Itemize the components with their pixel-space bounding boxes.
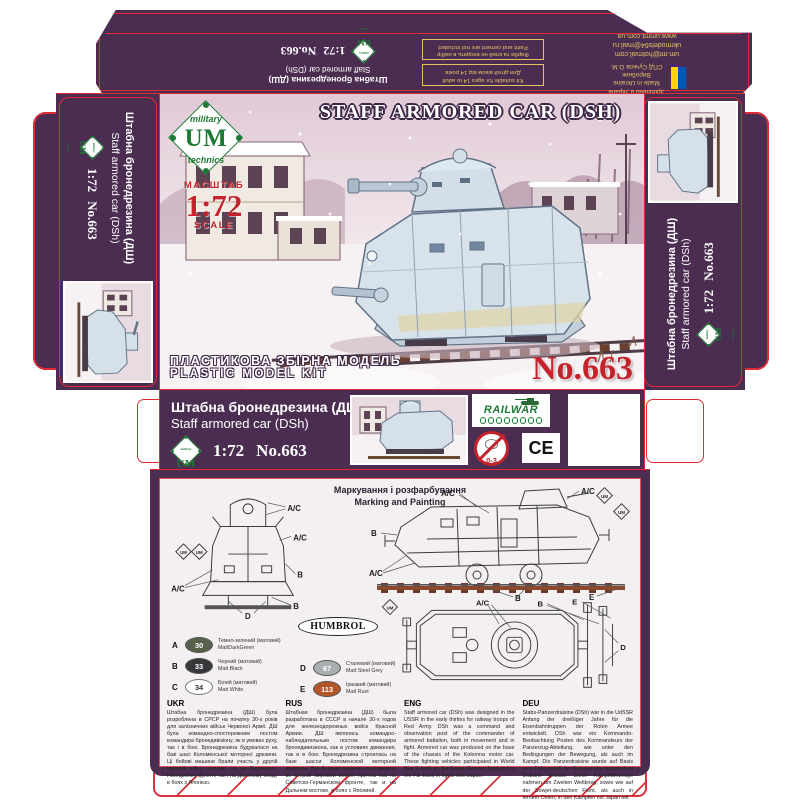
strip-title: Штабна бронедрезина (ДШ) Staff armored c… — [171, 398, 365, 433]
railwar-logo: RAILWAR — [472, 394, 550, 427]
svg-text:E: E — [572, 598, 577, 607]
scale-label: 1:72 — [213, 441, 244, 461]
paint-row: D 67 Сталевий (матовий)Matt Steel Grey — [300, 660, 395, 676]
right-ear-flap — [744, 112, 769, 370]
box-template-sheet: Зроблено в Україні Made in Ukraine Вироб… — [0, 0, 800, 800]
kit-title-en: Staff armored car (DSh) — [680, 201, 692, 387]
svg-text:A/C: A/C — [441, 489, 455, 498]
paint-row: E 113 Іржавий (матовий)Matt Rust — [300, 681, 395, 697]
svg-text:B: B — [538, 600, 544, 609]
um-diamond-marker: UM UM — [597, 488, 630, 520]
paint-row: A 30 Темно-зелений (матовий)MattDarkGree… — [172, 637, 281, 653]
um-logo: militaryUMtechnics — [170, 102, 242, 174]
svg-text:UM: UM — [618, 510, 625, 515]
ukraine-flag-icon — [671, 67, 686, 89]
paint-warning-box: Фарби та клей не входять в набір Paint a… — [422, 39, 544, 61]
top-flap-panel: Зроблено в Україні Made in Ukraine Вироб… — [96, 10, 752, 94]
side-vignette-image — [648, 101, 738, 203]
paint-swatch: 30 — [185, 637, 213, 653]
history-column-deu: DEU Stabs-Panzerdraisine (DSh) war in di… — [523, 699, 634, 761]
contact-emails: um.mt@hotmail.com ukrmodels64@mail.ru ww… — [552, 30, 742, 58]
svg-text:A/C: A/C — [476, 599, 490, 608]
flap-title-block: Штабна бронедрезина (ДШ) Staff armored c… — [242, 40, 414, 86]
strip-vignette-image — [350, 395, 468, 465]
um-logo: militaryUMtechnics — [697, 323, 720, 346]
humbrol-logo: HUMBROL — [298, 617, 378, 636]
bottom-panel-frame: Маркування і розфарбування Marking and P… — [150, 470, 650, 776]
top-flap-content: Зроблено в Україні Made in Ukraine Вироб… — [96, 34, 752, 91]
box-title: STAFF ARMORED CAR (DSH) — [300, 101, 641, 124]
kit-title-uk: Штабна бронедрезина (ДШ) — [123, 95, 135, 281]
left-ear-flap — [33, 112, 58, 370]
paint-swatch: 34 — [185, 679, 213, 695]
side-view-diagram: UM UM A/C B A/C A/C B E — [364, 483, 638, 601]
scale-label: 1:72 — [323, 44, 345, 59]
age-warning-box: Kit suitable for ages 14 to adult Для ді… — [422, 65, 544, 87]
scale-badge: МАСШТАБ 1:72 SCALE — [172, 180, 256, 231]
um-diamond-marker: UM UM — [176, 544, 207, 559]
paint-swatch: 67 — [313, 660, 341, 676]
side-vignette-image — [63, 281, 153, 383]
svg-text:UM: UM — [601, 494, 608, 499]
kit-number: No.663 — [256, 441, 307, 461]
svg-text:A/C: A/C — [171, 584, 185, 593]
side-panel-text: Штабна бронедрезина (ДШ) Staff armored c… — [645, 201, 741, 387]
svg-text:A/C: A/C — [293, 533, 307, 542]
svg-text:B: B — [297, 571, 303, 580]
history-column-eng: ENG Staff armored car (DSh) was designed… — [404, 699, 515, 761]
history-column-rus: RUS Штабная бронедрезина (ДШ) была разра… — [286, 699, 397, 761]
vignette-art — [352, 397, 466, 463]
middle-strip-panel: Штабна бронедрезина (ДШ) Staff armored c… — [160, 390, 645, 470]
kit-title-uk: Штабна бронедрезина (ДШ) — [242, 76, 414, 86]
paint-legend: HUMBROL A 30 Темно-зелений (матовий)Matt… — [172, 625, 402, 693]
kit-number: No.663 — [85, 201, 101, 240]
side-panel-text: Штабна бронедрезина (ДШ) Staff armored c… — [60, 95, 156, 281]
um-logo: militaryUMtechnics — [81, 136, 104, 159]
vignette-art — [65, 283, 151, 381]
warnings-block: Kit suitable for ages 14 to adult Для ді… — [422, 39, 544, 87]
um-diamond-marker: UM — [382, 600, 397, 615]
kit-type-label: ПЛАСТИКОВА ЗБІРНА МОДЕЛЬ PLASTIC MODEL K… — [170, 354, 401, 380]
tank-icon — [515, 398, 541, 405]
kit-title-uk: Штабна бронедрезина (ДШ) — [666, 201, 678, 387]
svg-text:A/C: A/C — [581, 487, 595, 496]
svg-text:UM: UM — [196, 550, 203, 555]
svg-text:UM: UM — [180, 550, 187, 555]
left-side-panel: Штабна бронедрезина (ДШ) Staff armored c… — [56, 94, 160, 390]
box-art-face: STAFF ARMORED CAR (DSH) militaryUMtechni… — [160, 94, 645, 390]
svg-text:A/C: A/C — [287, 504, 301, 513]
svg-text:A/C: A/C — [369, 569, 383, 578]
svg-text:D: D — [620, 643, 626, 652]
ce-mark: CE — [522, 433, 560, 463]
um-logo: militaryUMtechnics — [352, 40, 375, 63]
marking-panel: Маркування і розфарбування Marking and P… — [159, 478, 641, 767]
die-cut-tab — [646, 399, 704, 463]
kit-title-en: Staff armored car (DSh) — [109, 95, 121, 281]
kit-number: No.663 — [532, 350, 633, 388]
brand-row: militaryUMtechnics 1:72 No.663 — [81, 95, 104, 281]
age-0-3-warning-icon: 0-3 — [474, 431, 509, 466]
right-side-panel: Штабна бронедрезина (ДШ) Staff armored c… — [641, 94, 745, 390]
scale-label: 1:72 — [701, 290, 717, 314]
svg-text:B: B — [293, 602, 299, 611]
contacts-block: Зроблено в Україні Made in Ukraine Вироб… — [552, 30, 742, 95]
svg-text:D: D — [245, 612, 251, 621]
kit-number: No.663 — [281, 44, 317, 59]
vignette-art — [650, 103, 736, 201]
train-wheels-icon — [480, 417, 543, 424]
made-in-block: Зроблено в Україні Made in Ukraine Вироб… — [552, 62, 742, 95]
svg-text:UM: UM — [387, 605, 394, 610]
history-text-block: UKR Штабна бронедрезина (ДШ) була розроб… — [167, 699, 633, 761]
brand-row: militaryUMtechnics 1:72 No.663 — [242, 40, 414, 63]
paint-row: C 34 Білий (матовий)Matt White — [172, 679, 281, 695]
scale-label: 1:72 — [85, 168, 101, 192]
paint-swatch: 33 — [185, 658, 213, 674]
brand-row: militaryUMtechnics 1:72 No.663 — [171, 436, 307, 466]
brand-row: militaryUMtechnics 1:72 No.663 — [697, 201, 720, 387]
svg-text:B: B — [371, 529, 377, 538]
history-column-ukr: UKR Штабна бронедрезина (ДШ) була розроб… — [167, 699, 278, 761]
kit-title-en: Staff armored car (DSh) — [242, 66, 414, 75]
paint-row: B 33 Чорний (матовий)Matt Black — [172, 658, 281, 674]
um-logo: militaryUMtechnics — [171, 436, 201, 466]
paint-swatch: 113 — [313, 681, 341, 697]
blank-label-area — [568, 394, 640, 466]
front-view-diagram: UM UM A/C A/C A/C B B D — [164, 495, 332, 621]
top-view-diagram: UM A/C B E D — [364, 595, 638, 695]
made-in-text: Зроблено в Україні Made in Ukraine Вироб… — [608, 62, 664, 95]
kit-number: No.663 — [701, 242, 717, 281]
